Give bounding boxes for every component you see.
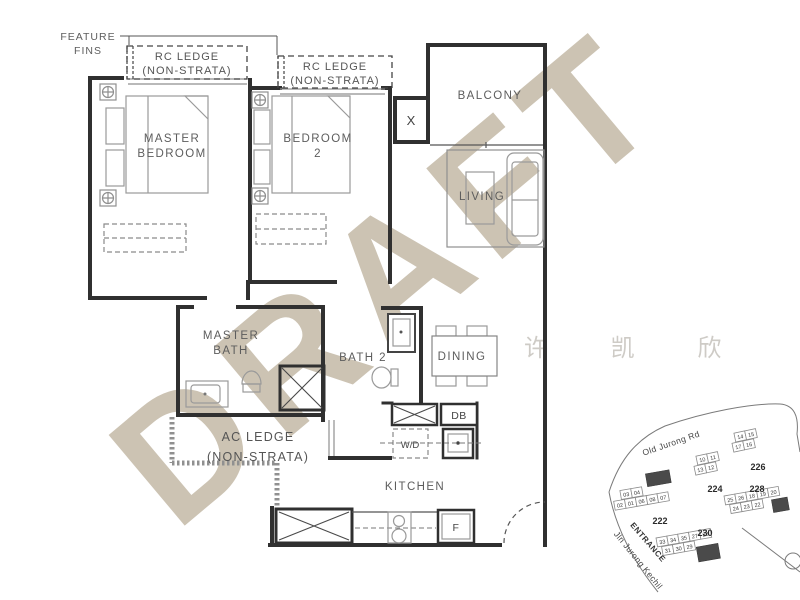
unit-number: 15 xyxy=(748,432,755,439)
bedroom2-label-2: 2 xyxy=(314,148,322,160)
block-222: 03040201060807 xyxy=(610,470,674,510)
floor-plan-drawing: X xyxy=(0,0,800,600)
unit-number: 18 xyxy=(749,493,756,500)
living-label: LIVING xyxy=(459,191,505,203)
walls xyxy=(90,45,545,545)
unit-number: 08 xyxy=(649,497,656,504)
unit-number: 22 xyxy=(754,502,761,509)
shaded-building xyxy=(771,497,789,513)
unit-number: 01 xyxy=(627,501,634,508)
bath2-fixtures xyxy=(372,314,415,388)
entrance-door xyxy=(504,500,545,543)
rc-ledge-2-label: RC LEDGE xyxy=(303,61,367,73)
block-222-label: 222 xyxy=(652,516,667,526)
feature-fins-label-2: FINS xyxy=(74,45,102,57)
master-bedroom-label-2: BEDROOM xyxy=(137,148,206,160)
block-228-label: 228 xyxy=(749,484,764,494)
master-bath-fixtures xyxy=(186,366,324,410)
unit-number: 10 xyxy=(699,457,706,464)
bedroom2-furniture xyxy=(254,96,350,244)
rc-ledge-1-label-2: (NON-STRATA) xyxy=(142,65,231,77)
shaft-label: X xyxy=(407,113,416,128)
unit-number: 24 xyxy=(732,506,739,513)
bedroom2-label: BEDROOM xyxy=(283,133,352,145)
unit-number: 07 xyxy=(660,495,667,502)
unit-number: 30 xyxy=(675,546,682,553)
rc-ledge-1-label: RC LEDGE xyxy=(155,51,219,63)
fridge-label: F xyxy=(453,522,460,534)
dining-label: DINING xyxy=(438,351,487,363)
unit-number: 02 xyxy=(617,503,624,510)
unit-number: 13 xyxy=(697,467,704,474)
unit-number: 04 xyxy=(634,490,641,497)
floorplan-page: DRAFT 许 凯 欣 xyxy=(0,0,800,600)
block-224-label: 224 xyxy=(707,484,722,494)
ac-ledge-label: AC LEDGE xyxy=(222,430,295,444)
site-map: Old Jurong Rd ENTRANCE Jln Jurong Kechil… xyxy=(609,404,800,592)
service-boxes: DB W/D xyxy=(380,404,483,458)
unit-number: 35 xyxy=(681,535,688,542)
rc-ledge-2-label-2: (NON-STRATA) xyxy=(290,75,379,87)
shaded-building xyxy=(645,470,671,487)
block-230-label: 230 xyxy=(697,528,712,538)
unit-number: 16 xyxy=(746,442,753,449)
ac-ledge-label-2: (NON-STRATA) xyxy=(207,450,309,464)
feature-fins-label: FEATURE xyxy=(60,31,115,43)
balcony-label: BALCONY xyxy=(458,90,523,102)
unit-number: 12 xyxy=(708,465,715,472)
db-label: DB xyxy=(451,410,467,422)
washer-dryer-label: W/D xyxy=(401,440,420,451)
block-224: 10111312 xyxy=(692,452,721,476)
master-bedroom-label: MASTER xyxy=(144,133,200,145)
shaft-box: X xyxy=(395,98,428,142)
unit-number: 03 xyxy=(623,492,630,499)
unit-number: 34 xyxy=(670,537,677,544)
unit-number: 14 xyxy=(737,434,744,441)
unit-number: 25 xyxy=(727,497,734,504)
master-bath-label: MASTER xyxy=(203,330,259,342)
master-bedroom-furniture xyxy=(104,96,208,252)
unit-number: 20 xyxy=(770,490,777,497)
road-label-old-jurong: Old Jurong Rd xyxy=(641,429,701,458)
bath2-label: BATH 2 xyxy=(339,352,387,364)
block-226-label: 226 xyxy=(750,462,765,472)
unit-number: 06 xyxy=(638,499,645,506)
unit-number: 31 xyxy=(664,548,671,555)
shaded-building xyxy=(696,543,720,562)
block-226: 14151716 xyxy=(730,429,759,453)
unit-number: 17 xyxy=(735,444,742,451)
unit-number: 26 xyxy=(738,495,745,502)
unit-number: 33 xyxy=(659,539,666,546)
kitchen-label: KITCHEN xyxy=(385,481,445,493)
kitchen-fixtures: F xyxy=(276,509,475,543)
unit-number: 23 xyxy=(743,504,750,511)
column-markers xyxy=(100,84,268,206)
master-bath-label-2: BATH xyxy=(213,345,248,357)
unit-number: 11 xyxy=(710,455,717,462)
unit-number: 29 xyxy=(686,544,693,551)
